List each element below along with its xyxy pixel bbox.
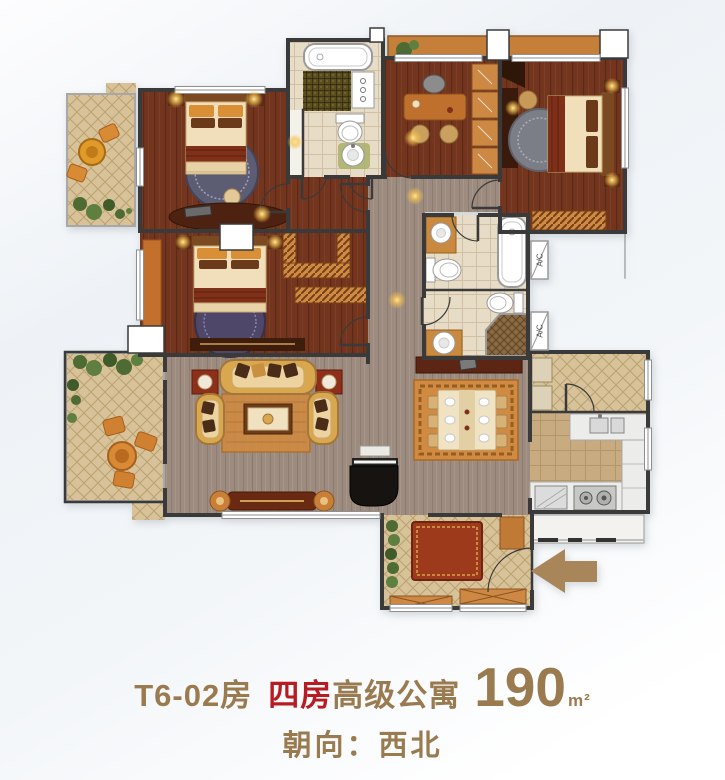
runner-cabinet [143, 240, 161, 330]
page: A/C A/C T6-02房四房高级公寓190m² 朝向：西北 [0, 0, 725, 780]
orientation-text: 朝向：西北 [0, 722, 725, 764]
coffee-table [244, 404, 292, 434]
ac-unit-label: A/C [536, 253, 545, 267]
bathtub [304, 44, 372, 70]
washbasin [342, 144, 364, 166]
area-value: 190 [474, 656, 566, 719]
shower-mosaic [303, 71, 351, 111]
entry-direction-arrow-icon [531, 549, 597, 593]
toilet [336, 114, 364, 143]
washing-machine [352, 72, 374, 108]
tv-cabinet [210, 491, 334, 511]
wardrobe [532, 211, 606, 230]
chair [519, 91, 537, 109]
dining-area [414, 357, 522, 460]
apartment-type: 高级公寓 [332, 678, 460, 714]
toilet [487, 293, 523, 313]
caption-block: T6-02房四房高级公寓190m² 朝向：西北 [0, 656, 725, 764]
ac-unit-label: A/C [536, 324, 545, 338]
double-bed [548, 92, 614, 176]
entry-rug [412, 522, 482, 580]
counter [570, 414, 648, 440]
piano-bench [360, 446, 390, 456]
room-count: 四房 [268, 678, 332, 714]
floor-plan: A/C A/C [0, 0, 725, 655]
desk-chair [423, 75, 445, 93]
bathtub [498, 217, 526, 287]
caption-line-1: T6-02房四房高级公寓190m² [0, 656, 725, 719]
toilet [426, 258, 461, 282]
cabinet [532, 386, 552, 410]
hall-cabinet [500, 517, 524, 549]
dining-table [438, 390, 496, 450]
stove [574, 486, 616, 510]
sink [590, 418, 608, 433]
unit-number: T6-02房 [134, 678, 252, 714]
cabinet [532, 358, 552, 382]
ac-platforms: A/C A/C [531, 241, 548, 350]
guest-chair [440, 125, 458, 143]
double-bed [184, 92, 248, 174]
area-unit: m² [568, 691, 591, 711]
